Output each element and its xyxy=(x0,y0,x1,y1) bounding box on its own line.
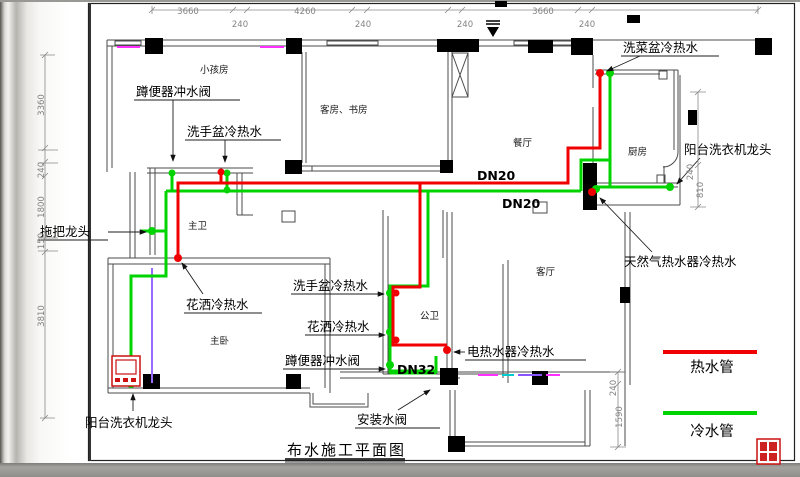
annotation-label: 蹲便器冲水阀 xyxy=(285,353,360,368)
annotation-label: 洗手盆冷热水 xyxy=(293,278,369,293)
dim-label: 1590 xyxy=(615,406,625,428)
annotation-label: 安装水阀 xyxy=(357,412,407,427)
legend-hot-label: 热水管 xyxy=(690,359,734,376)
dim-label: 810 xyxy=(696,182,706,198)
room-label: 小孩房 xyxy=(200,64,229,76)
dim-label: 240 xyxy=(457,20,473,30)
washing-machine-symbol xyxy=(112,356,140,386)
dim-label: 240 xyxy=(609,380,619,396)
annotation-label: 洗菜盆冷热水 xyxy=(623,40,699,55)
room-label: 餐厅 xyxy=(513,137,533,149)
dim-label: 240 xyxy=(232,20,248,30)
scanned-plan-page: 蹲便器冲水阀 洗手盆冷热水 拖把龙头 花洒冷热水 洗手盆冷热水 花洒冷热水 蹲便… xyxy=(0,0,800,477)
dim-label: 3810 xyxy=(37,305,47,327)
dim-label: 3660 xyxy=(532,7,554,17)
dim-label: 150 xyxy=(37,233,47,249)
dim-label: 240 xyxy=(37,162,47,178)
red-seal-stamp xyxy=(757,439,780,464)
annotation-label: 阳台洗衣机龙头 xyxy=(85,415,173,430)
annotation-label: 天然气热水器冷热水 xyxy=(624,254,737,269)
drawing-title: 布水施工平面图 xyxy=(285,441,406,462)
annotation-label: 蹲便器冲水阀 xyxy=(136,84,211,99)
annotation-label: 花洒冷热水 xyxy=(307,319,370,334)
dim-label: 240 xyxy=(579,20,595,30)
dim-label: 3660 xyxy=(177,7,199,17)
dim-label: 240 xyxy=(355,20,371,30)
dim-label: 4260 xyxy=(294,7,316,17)
pipe-size-label: DN20 xyxy=(502,196,541,211)
dim-label: 3360 xyxy=(37,94,47,116)
room-label: 厨房 xyxy=(628,146,647,158)
annotation-label: 阳台洗衣机龙头 xyxy=(684,142,772,157)
dim-label: 1800 xyxy=(37,196,47,218)
floor-plan-drawing: 蹲便器冲水阀 洗手盆冷热水 拖把龙头 花洒冷热水 洗手盆冷热水 花洒冷热水 蹲便… xyxy=(0,0,800,477)
annotation-label: 拖把龙头 xyxy=(40,224,90,239)
legend-cold-label: 冷水管 xyxy=(690,423,734,440)
room-label: 公卫 xyxy=(420,311,440,322)
room-label: 主卧 xyxy=(210,335,230,347)
pipe-size-label: DN32 xyxy=(397,362,435,377)
annotation-label: 花洒冷热水 xyxy=(186,297,249,312)
annotation-label: 电热水器冷热水 xyxy=(467,344,555,359)
pipe-size-label: DN20 xyxy=(477,168,516,183)
annotation-label: 洗手盆冷热水 xyxy=(187,124,263,139)
room-label: 主卫 xyxy=(188,220,208,232)
room-label: 客厅 xyxy=(536,266,556,278)
room-label: 客房、书房 xyxy=(320,104,368,116)
drawing-title-text: 布水施工平面图 xyxy=(287,441,406,459)
dim-label: 240 xyxy=(686,164,696,180)
